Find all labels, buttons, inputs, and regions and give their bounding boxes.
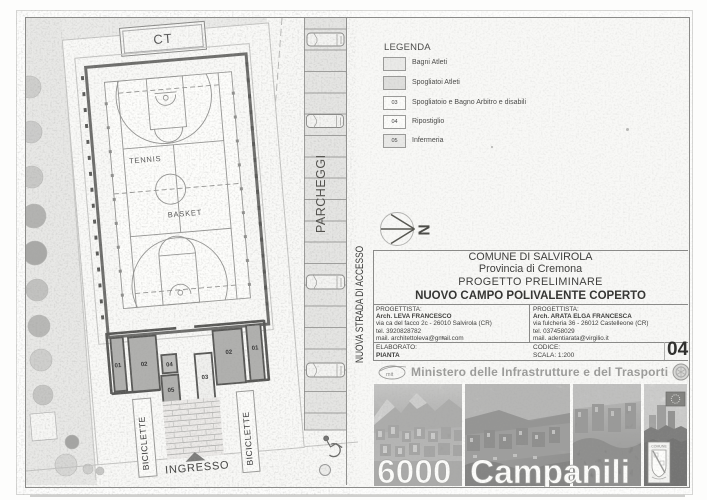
svg-text:01: 01: [114, 363, 122, 370]
svg-text:03: 03: [201, 375, 209, 382]
svg-text:04: 04: [166, 362, 174, 369]
svg-text:01: 01: [252, 345, 260, 352]
svg-text:02: 02: [225, 350, 233, 357]
svg-text:COMUNE: COMUNE: [651, 445, 667, 449]
svg-text:6000: 6000: [377, 454, 452, 487]
svg-text:Campanili: Campanili: [470, 454, 630, 487]
svg-text:mit: mit: [386, 372, 394, 378]
svg-text:05: 05: [167, 388, 175, 395]
svg-text:02: 02: [141, 362, 149, 369]
